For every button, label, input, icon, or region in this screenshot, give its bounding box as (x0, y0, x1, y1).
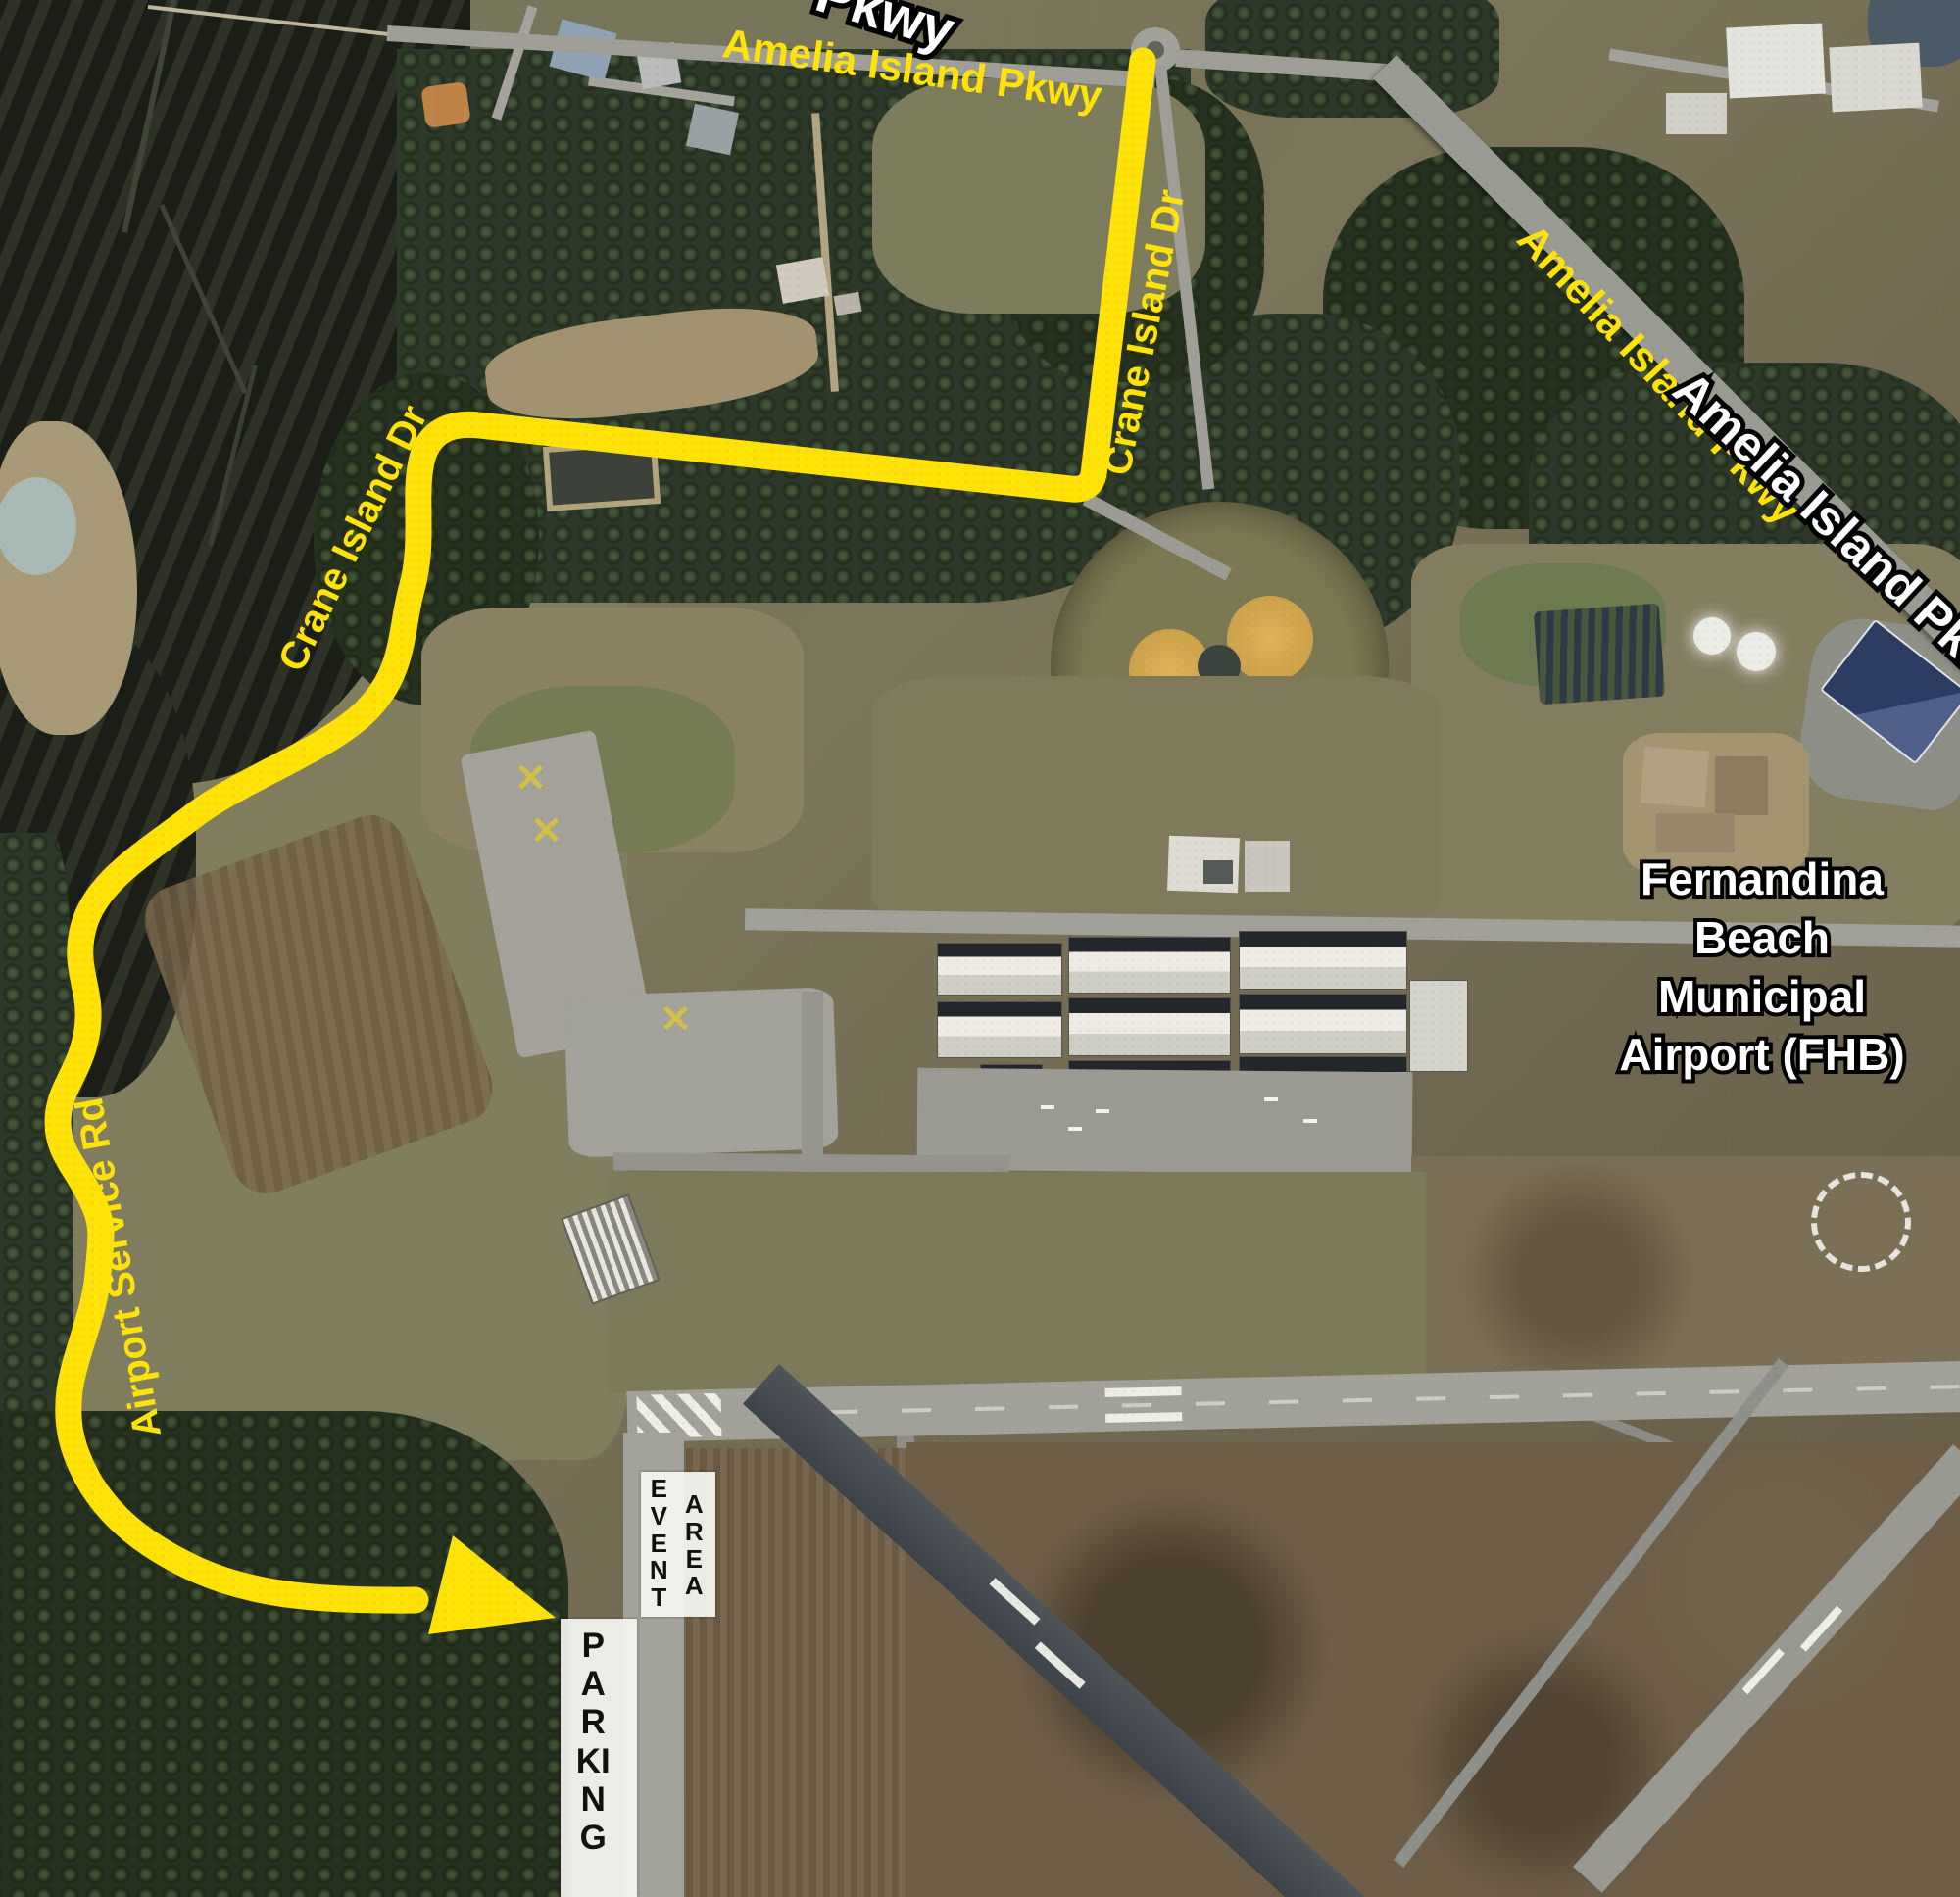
satellite-route-map: Pkwy Amelia Island Pkwy Amelia Island Pk… (0, 0, 1960, 1897)
parking-label: PARKING (574, 1627, 612, 1857)
area-label: AREA (680, 1491, 709, 1600)
route-path (58, 61, 1143, 1600)
airport-name-label: Fernandina Beach Municipal Airport (FHB) (1556, 851, 1960, 1085)
route-arrowhead-icon (428, 1535, 556, 1634)
event-label: EVENT (645, 1476, 673, 1612)
